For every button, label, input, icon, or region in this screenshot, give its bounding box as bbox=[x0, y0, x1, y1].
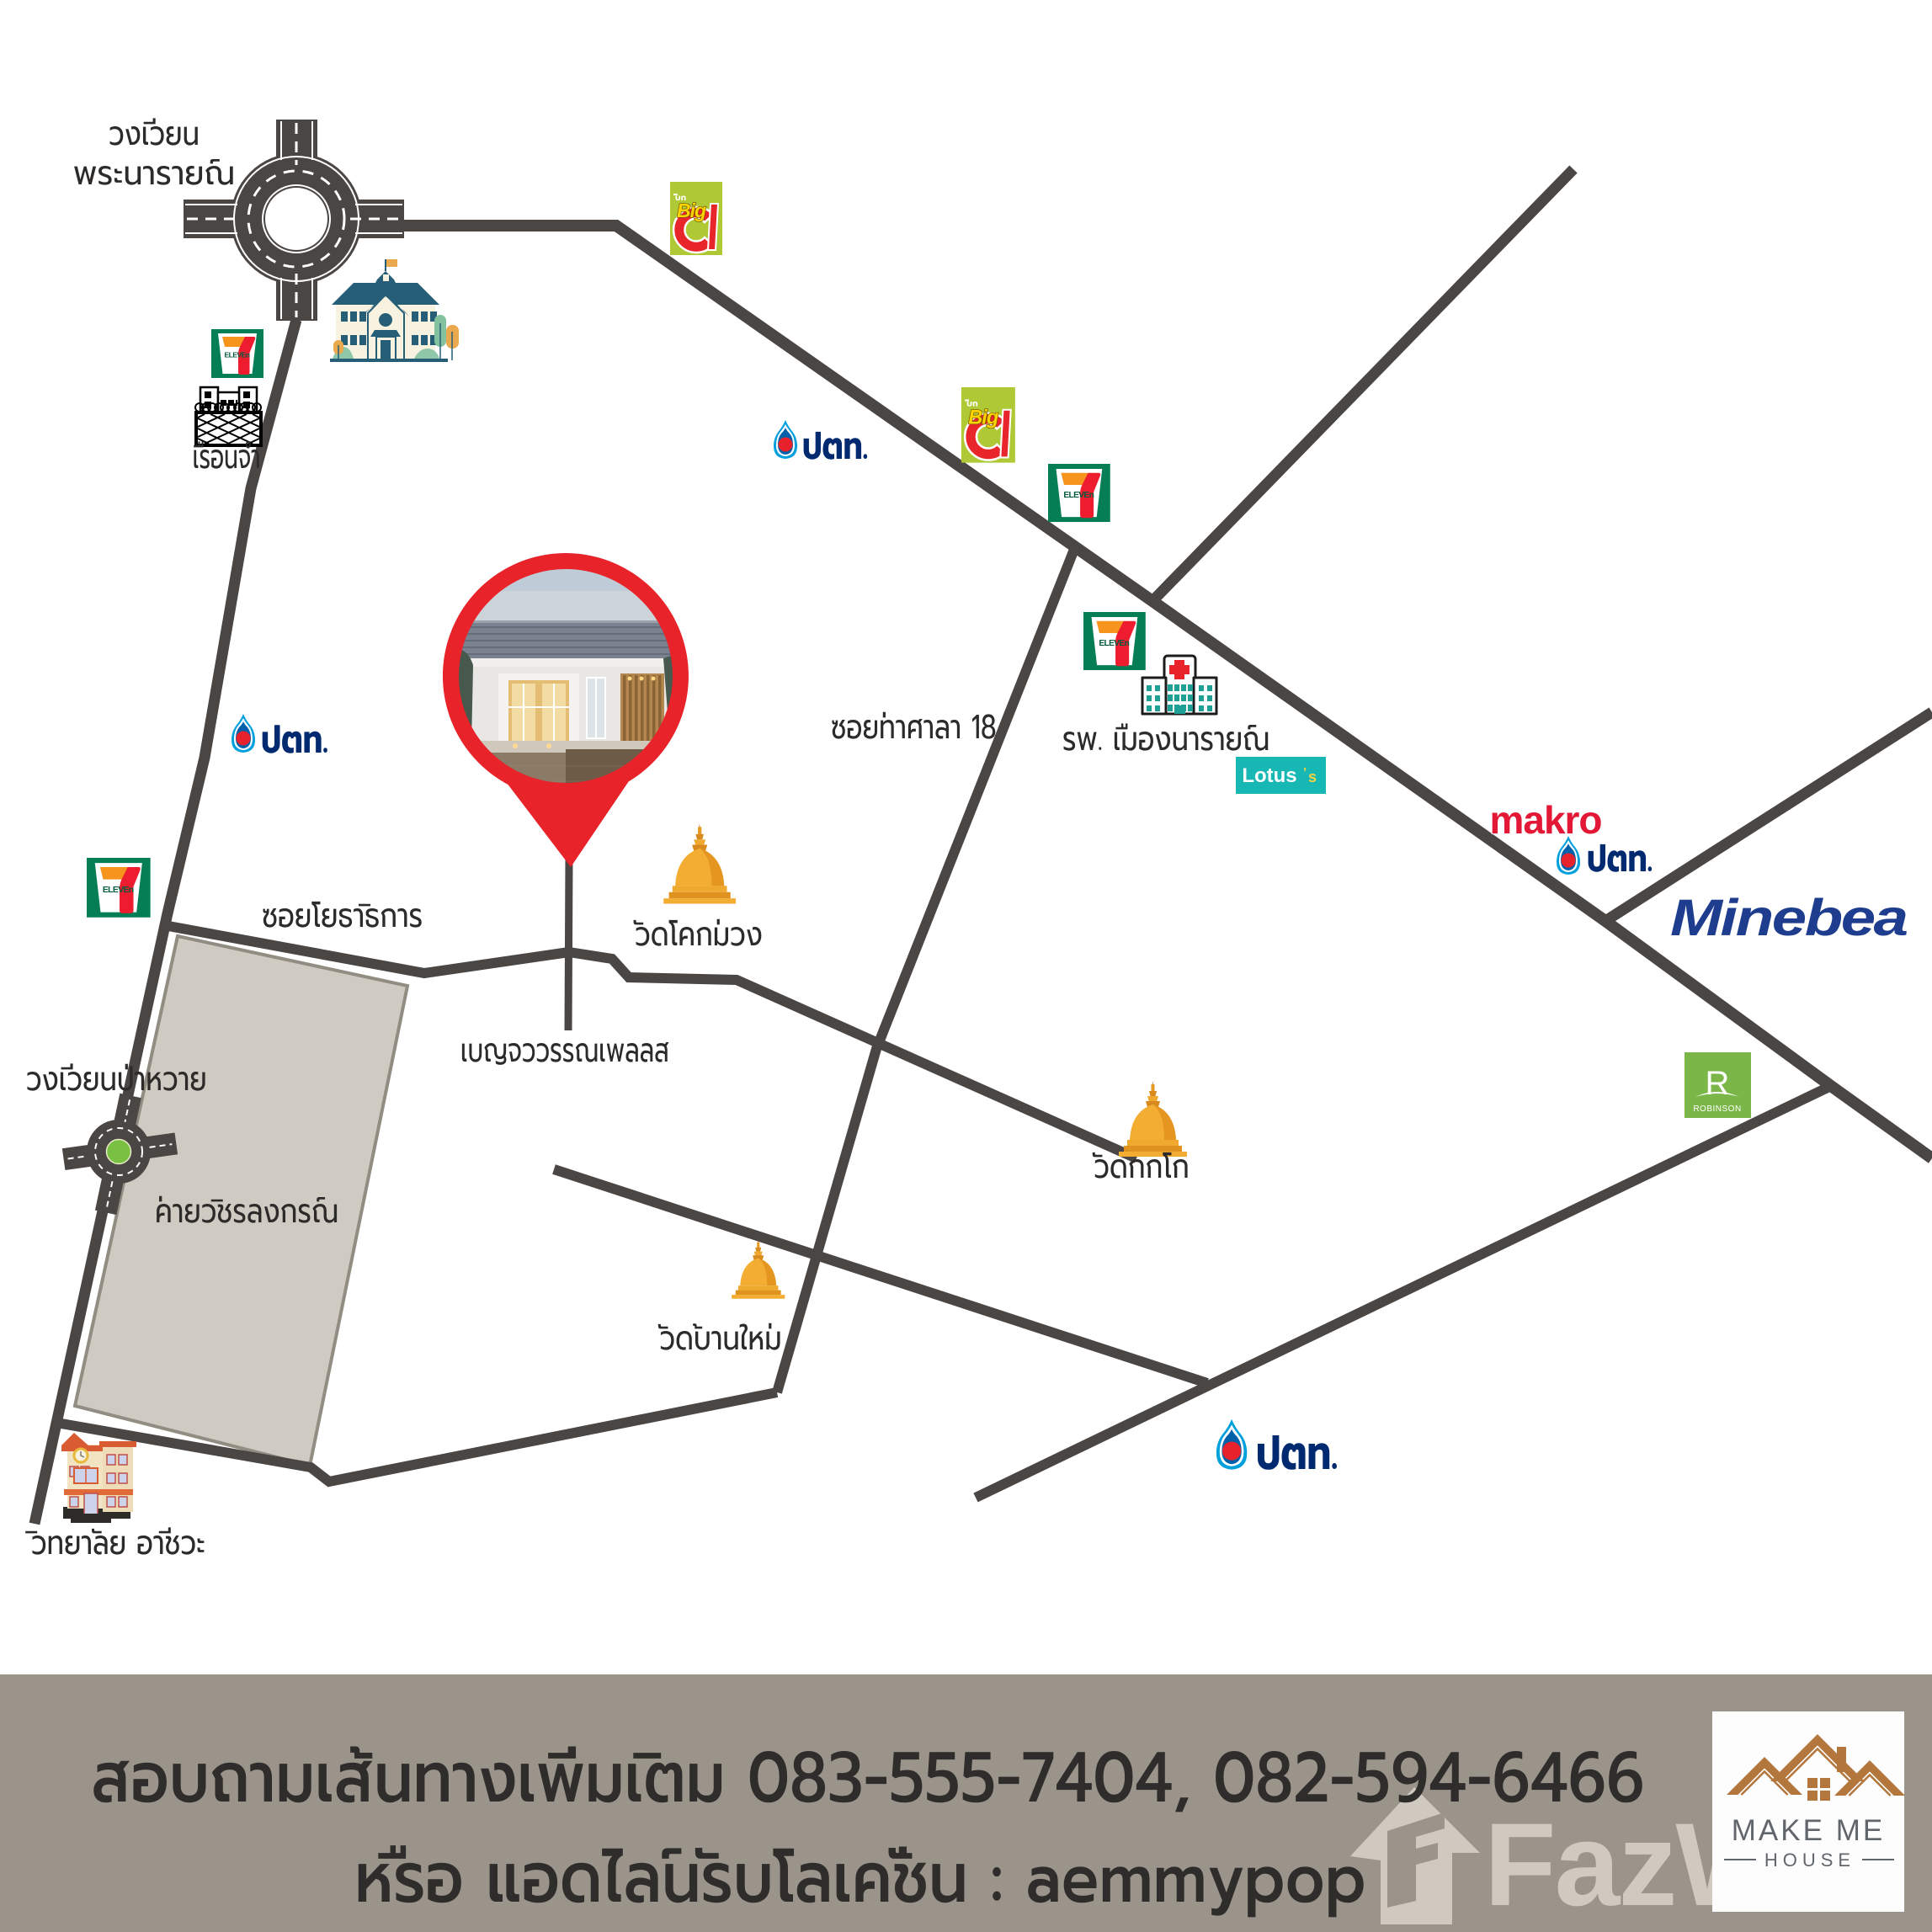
svg-text:makro: makro bbox=[1489, 798, 1601, 842]
svg-text:MAKE ME: MAKE ME bbox=[1732, 1814, 1885, 1847]
svg-text:ROBINSON: ROBINSON bbox=[1693, 1104, 1741, 1114]
svg-text:Lotus: Lotus bbox=[1242, 764, 1296, 787]
svg-text:s: s bbox=[1308, 769, 1317, 785]
svg-text:’: ’ bbox=[1303, 765, 1307, 780]
svg-text:HOUSE: HOUSE bbox=[1764, 1850, 1855, 1871]
svg-text:R: R bbox=[1706, 1065, 1730, 1102]
svg-text:Minebea: Minebea bbox=[1670, 889, 1907, 946]
